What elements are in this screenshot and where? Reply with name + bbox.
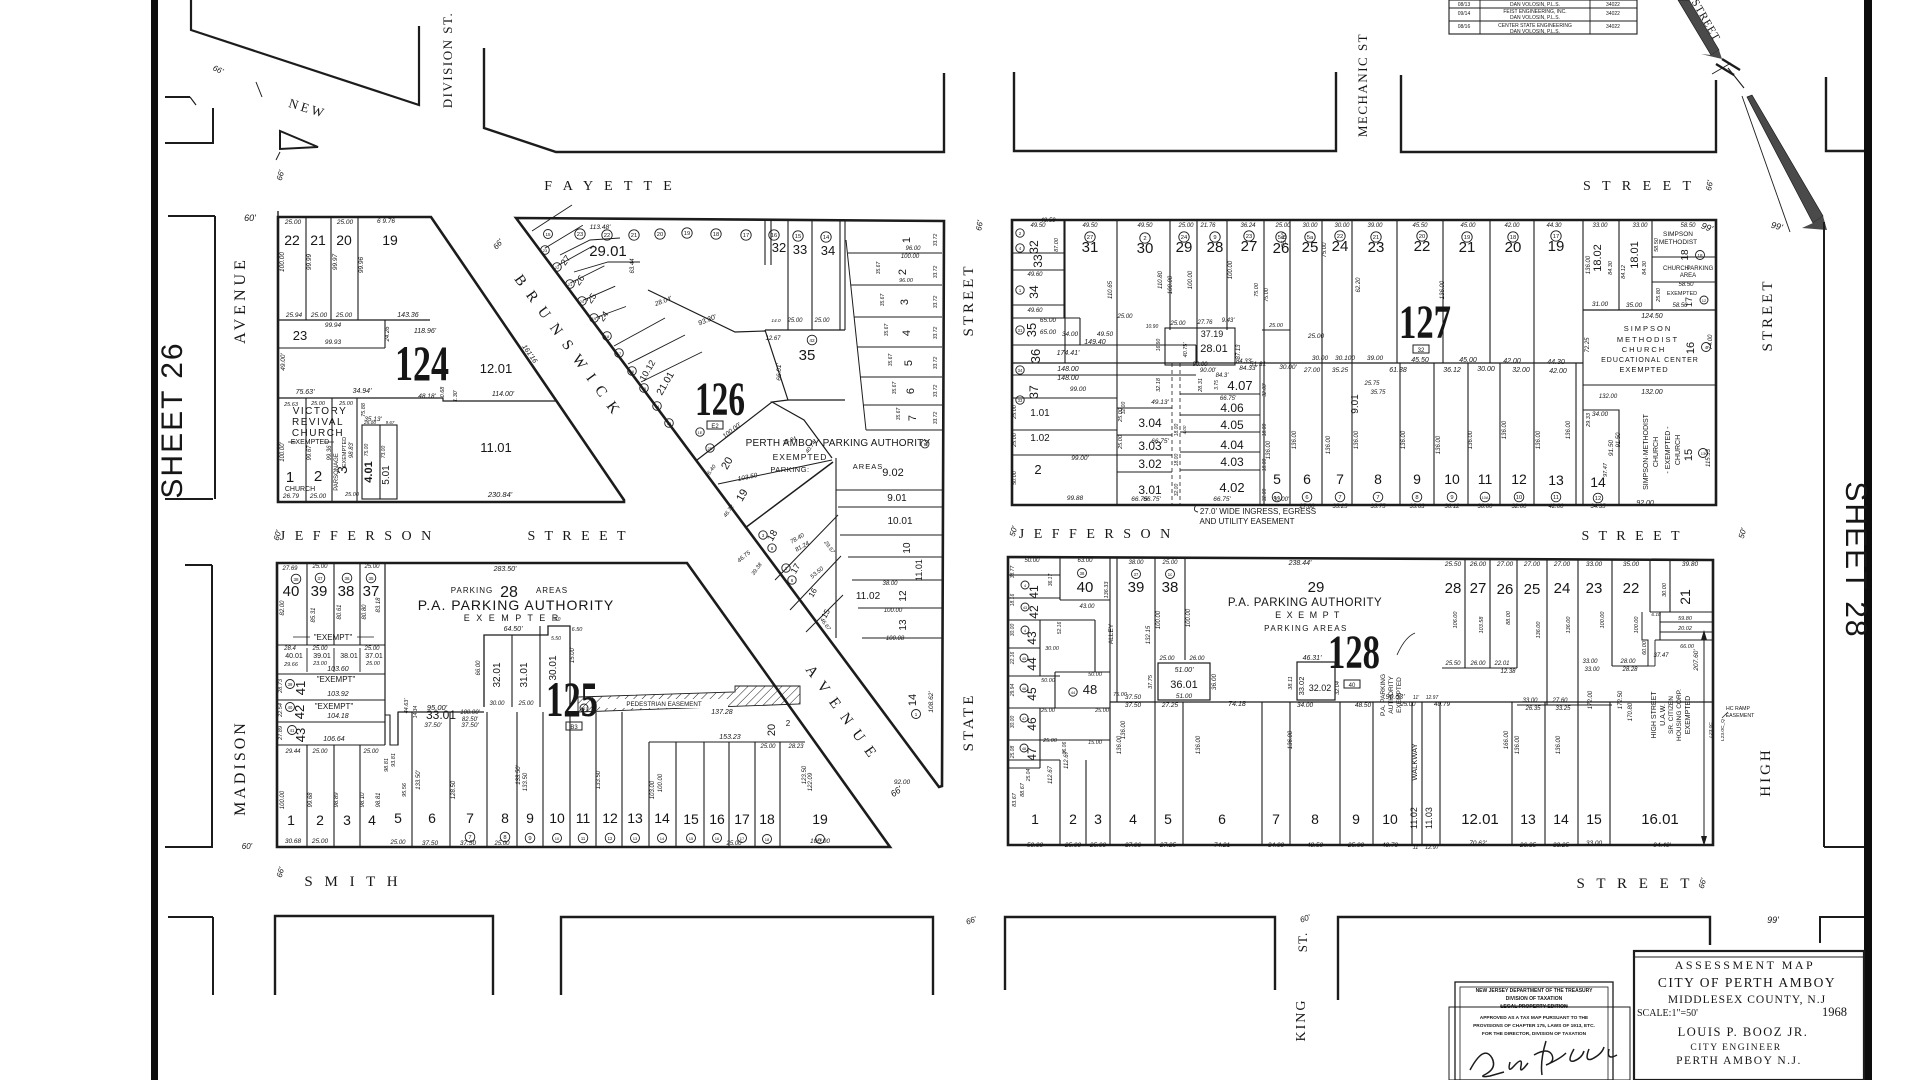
- svg-text:32.00: 32.00: [1121, 402, 1127, 415]
- svg-text:2: 2: [1034, 462, 1041, 477]
- svg-text:22: 22: [1623, 580, 1640, 597]
- svg-text:172.50: 172.50: [1618, 690, 1624, 709]
- svg-text:12: 12: [602, 810, 618, 826]
- svg-text:65.00: 65.00: [1040, 329, 1057, 336]
- svg-text:37.19: 37.19: [1201, 329, 1224, 339]
- svg-text:25.00: 25.00: [1161, 560, 1178, 566]
- svg-text:4.03: 4.03: [1220, 455, 1244, 469]
- svg-text:100.00: 100.00: [1186, 608, 1192, 627]
- svg-text:1E: 1E: [698, 430, 703, 435]
- svg-text:11.02: 11.02: [856, 591, 881, 602]
- svg-text:100.00': 100.00': [460, 710, 480, 716]
- svg-text:APPROVED AS A TAX MAP PURSUANT: APPROVED AS A TAX MAP PURSUANT TO THE: [1480, 1015, 1589, 1021]
- svg-text:103.92: 103.92: [327, 691, 349, 698]
- svg-text:74.00: 74.00: [1708, 334, 1714, 350]
- svg-text:22: 22: [604, 233, 610, 239]
- svg-text:SHEET 26: SHEET 26: [156, 341, 189, 498]
- svg-text:99.36: 99.36: [327, 445, 333, 461]
- svg-text:25.04: 25.04: [1026, 769, 1032, 783]
- svg-text:14: 14: [654, 810, 670, 826]
- svg-text:12: 12: [1595, 496, 1601, 502]
- svg-text:25.08: 25.08: [1010, 746, 1016, 760]
- svg-text:32.00: 32.00: [1174, 484, 1180, 497]
- svg-text:26.00: 26.00: [1469, 561, 1487, 568]
- svg-text:23: 23: [1246, 234, 1252, 240]
- svg-text:26.35: 26.35: [1519, 842, 1537, 849]
- svg-text:25.00: 25.00: [1274, 223, 1291, 229]
- svg-text:36.12: 36.12: [1444, 504, 1460, 510]
- svg-text:100.00: 100.00: [280, 790, 286, 809]
- svg-text:83.67: 83.67: [1012, 792, 1018, 807]
- svg-text:39.01: 39.01: [313, 653, 331, 660]
- svg-text:9.43': 9.43': [1222, 318, 1236, 324]
- svg-text:149.40: 149.40: [1084, 339, 1106, 346]
- svg-text:25.00: 25.00: [813, 318, 830, 324]
- svg-text:97.47: 97.47: [1603, 462, 1609, 477]
- svg-text:20: 20: [657, 232, 663, 238]
- svg-text:40.01: 40.01: [285, 653, 303, 660]
- svg-text:43: 43: [1023, 606, 1027, 610]
- svg-text:49.50: 49.50: [1082, 223, 1098, 229]
- svg-text:METHODIST: METHODIST: [1659, 239, 1697, 246]
- svg-text:30.100: 30.100: [1335, 355, 1355, 362]
- svg-text:E X E M P T E R: E X E M P T E R: [464, 613, 561, 623]
- svg-text:4.06: 4.06: [1220, 401, 1244, 415]
- svg-text:33.72: 33.72: [933, 385, 939, 398]
- svg-text:27.76: 27.76: [1196, 320, 1213, 326]
- svg-text:40: 40: [283, 583, 300, 600]
- svg-text:20.02: 20.02: [1677, 626, 1692, 632]
- svg-text:34.00: 34.00: [1062, 331, 1079, 338]
- svg-text:9: 9: [526, 810, 534, 826]
- svg-text:136.00: 136.00: [1440, 280, 1446, 299]
- svg-text:6 9.76: 6 9.76: [377, 218, 395, 225]
- svg-text:15.00: 15.00: [1088, 740, 1103, 746]
- svg-text:100.00: 100.00: [279, 252, 286, 272]
- svg-text:15: 15: [1586, 811, 1602, 827]
- svg-text:30.00: 30.00: [1477, 504, 1493, 510]
- svg-text:17: 17: [743, 233, 749, 239]
- svg-text:23: 23: [577, 232, 583, 238]
- svg-text:22: 22: [1337, 234, 1343, 240]
- svg-text:27.00: 27.00: [1523, 561, 1541, 568]
- svg-text:66.75': 66.75': [1213, 496, 1231, 503]
- svg-text:166.00: 166.00: [1504, 730, 1510, 749]
- svg-text:59.80: 59.80: [1678, 616, 1693, 622]
- svg-text:08/16: 08/16: [1458, 24, 1471, 30]
- svg-text:25.00: 25.00: [1118, 434, 1124, 450]
- svg-text:34: 34: [821, 243, 835, 258]
- svg-text:3: 3: [1094, 811, 1102, 827]
- svg-text:25.00: 25.00: [311, 646, 328, 652]
- svg-text:12.38: 12.38: [1500, 669, 1516, 675]
- svg-text:27.25: 27.25: [1159, 842, 1177, 849]
- svg-text:38.00: 38.00: [1128, 560, 1144, 566]
- svg-text:1.02: 1.02: [1030, 433, 1050, 444]
- svg-text:136.00: 136.00: [1326, 435, 1332, 454]
- svg-text:87.00: 87.00: [1054, 237, 1060, 252]
- svg-text:18.01: 18.01: [1629, 241, 1641, 269]
- svg-text:46: 46: [1022, 687, 1026, 691]
- svg-text:62.20: 62.20: [1356, 277, 1362, 293]
- svg-text:49.60: 49.60: [1027, 272, 1043, 278]
- svg-text:33.00: 33.00: [1584, 667, 1600, 673]
- svg-text:64.50': 64.50': [504, 626, 524, 633]
- svg-text:4: 4: [901, 330, 913, 336]
- svg-text:4.07: 4.07: [1227, 378, 1252, 393]
- svg-text:33.02: 33.02: [1297, 677, 1306, 696]
- svg-text:49.13': 49.13': [1151, 399, 1169, 406]
- svg-text:25.00: 25.00: [1012, 404, 1018, 420]
- svg-text:48.18': 48.18': [418, 393, 436, 400]
- svg-text:23: 23: [1368, 239, 1385, 256]
- svg-text:44.30: 44.30: [1546, 223, 1562, 229]
- svg-text:14.34: 14.34: [413, 706, 419, 719]
- svg-text:25.00: 25.00: [1177, 223, 1194, 229]
- svg-text:25.50: 25.50: [1444, 561, 1462, 568]
- svg-text:58.50: 58.50: [1672, 303, 1688, 309]
- svg-text:PARSONAGE: PARSONAGE: [334, 453, 340, 491]
- svg-text:35.25: 35.25: [1332, 367, 1349, 374]
- svg-text:27: 27: [1470, 580, 1487, 597]
- svg-text:J E F F E R S O N: J E F F E R S O N: [280, 529, 434, 544]
- svg-text:1: 1: [287, 812, 295, 828]
- svg-text:32.00: 32.00: [1512, 367, 1530, 374]
- svg-text:L23.0C: L23.0C: [1708, 722, 1714, 738]
- svg-text:16.90: 16.90: [1156, 339, 1162, 352]
- svg-text:33.72: 33.72: [933, 357, 939, 370]
- svg-text:14: 14: [823, 235, 830, 241]
- svg-text:25.00: 25.00: [725, 841, 742, 847]
- svg-text:6: 6: [428, 810, 436, 826]
- svg-text:95.56: 95.56: [402, 782, 408, 797]
- svg-text:SIMPSON: SIMPSON: [1663, 231, 1693, 238]
- svg-text:33.72: 33.72: [933, 266, 939, 279]
- svg-text:PERTH AMBOY PARKING AUTHORITY: PERTH AMBOY PARKING AUTHORITY: [746, 438, 931, 449]
- svg-text:CHURCH: CHURCH: [1653, 437, 1660, 467]
- svg-text:100.00: 100.00: [1228, 260, 1234, 279]
- svg-text:84.12: 84.12: [1621, 265, 1627, 279]
- svg-text:6: 6: [1218, 811, 1226, 827]
- svg-text:136.00: 136.00: [1515, 735, 1521, 754]
- svg-text:CITY ENGINEER: CITY ENGINEER: [1690, 1043, 1781, 1053]
- svg-text:45.00: 45.00: [1459, 357, 1477, 364]
- svg-text:11.01: 11.01: [480, 440, 512, 455]
- svg-text:25.00: 25.00: [517, 701, 534, 707]
- svg-text:24: 24: [1554, 580, 1571, 597]
- svg-text:35.67: 35.67: [884, 324, 890, 337]
- svg-text:100.00: 100.00: [1188, 270, 1194, 289]
- svg-text:18: 18: [605, 334, 610, 339]
- svg-text:22.01: 22.01: [1493, 661, 1509, 667]
- svg-text:EXEMPTED: EXEMPTED: [342, 437, 348, 467]
- svg-text:25.00: 25.00: [362, 749, 379, 755]
- svg-text:170.80: 170.80: [1628, 702, 1634, 721]
- svg-text:11: 11: [1553, 495, 1559, 501]
- svg-text:4: 4: [1024, 584, 1026, 588]
- svg-text:96.00: 96.00: [899, 278, 914, 284]
- svg-text:32.00: 32.00: [1511, 504, 1527, 510]
- svg-text:21: 21: [631, 233, 637, 239]
- svg-text:28.28: 28.28: [1621, 667, 1638, 673]
- svg-text:15: 15: [545, 232, 551, 237]
- svg-text:136.00: 136.00: [1354, 430, 1360, 449]
- svg-text:HC RAMP: HC RAMP: [1726, 706, 1750, 712]
- svg-text:103.60: 103.60: [327, 666, 349, 673]
- svg-text:75.00: 75.00: [1254, 282, 1260, 297]
- svg-text:38: 38: [1080, 571, 1085, 576]
- svg-text:12.67: 12.67: [765, 336, 781, 342]
- svg-text:128.50: 128.50: [451, 780, 457, 799]
- svg-text:46.31': 46.31': [1303, 655, 1323, 662]
- svg-text:22: 22: [555, 265, 560, 270]
- svg-text:28: 28: [1207, 239, 1224, 256]
- svg-text:36: 36: [344, 576, 350, 581]
- svg-text:CHURCH: CHURCH: [292, 428, 344, 439]
- svg-text:10: 10: [549, 810, 565, 826]
- svg-text:41: 41: [290, 728, 295, 733]
- svg-text:CHURCH: CHURCH: [285, 486, 315, 493]
- svg-text:133.50': 133.50': [416, 769, 422, 789]
- svg-text:19: 19: [382, 232, 398, 248]
- svg-text:12: 12: [1702, 298, 1707, 303]
- svg-text:3.01: 3.01: [1138, 483, 1162, 497]
- svg-text:33.01: 33.01: [426, 708, 456, 722]
- svg-text:EDUCATIONAL CENTER: EDUCATIONAL CENTER: [1601, 357, 1699, 364]
- svg-text:133.50: 133.50: [523, 772, 529, 791]
- svg-text:J E F F E R S O N: J E F F E R S O N: [1019, 527, 1173, 542]
- svg-text:100.00: 100.00: [884, 608, 903, 614]
- svg-text:25.00: 25.00: [1089, 842, 1107, 849]
- svg-text:21: 21: [1373, 235, 1379, 241]
- svg-text:4: 4: [368, 812, 376, 828]
- svg-text:25.00: 25.00: [1169, 321, 1186, 327]
- svg-text:U.A.W.: U.A.W.: [1660, 704, 1667, 726]
- svg-text:14.0: 14.0: [771, 318, 781, 324]
- svg-text:33.25: 33.25: [1555, 706, 1571, 712]
- svg-text:35.25: 35.25: [1332, 504, 1348, 510]
- svg-text:38.11: 38.11: [1288, 676, 1294, 689]
- svg-text:27.69: 27.69: [281, 566, 298, 572]
- svg-text:27.00: 27.00: [1553, 561, 1571, 568]
- svg-text:33.00: 33.00: [1632, 223, 1648, 229]
- svg-text:3: 3: [343, 812, 351, 828]
- svg-text:1: 1: [901, 237, 913, 243]
- svg-text:4.04: 4.04: [1220, 438, 1244, 452]
- svg-text:11: 11: [1478, 471, 1493, 487]
- svg-text:33: 33: [793, 242, 807, 257]
- svg-text:132.15: 132.15: [1146, 625, 1152, 644]
- svg-text:27.89: 27.89: [278, 726, 284, 741]
- svg-text:33.00: 33.00: [1586, 840, 1603, 847]
- svg-text:66.75': 66.75': [1131, 496, 1149, 503]
- svg-text:15.00': 15.00': [570, 646, 576, 663]
- svg-text:25.00: 25.00: [1158, 656, 1175, 662]
- svg-text:NEW JERSEY DEPARTMENT OF THE T: NEW JERSEY DEPARTMENT OF THE TREASURY: [1476, 988, 1594, 994]
- svg-text:10A: 10A: [1482, 496, 1489, 500]
- svg-text:98.81: 98.81: [376, 792, 382, 807]
- svg-text:25.00: 25.00: [311, 749, 328, 755]
- svg-text:34: 34: [1027, 285, 1041, 299]
- svg-text:1.17: 1.17: [581, 707, 588, 711]
- svg-text:80.80: 80.80: [362, 604, 368, 620]
- svg-text:60': 60': [244, 213, 256, 223]
- svg-text:137.28: 137.28: [711, 709, 733, 716]
- svg-text:AVENUE: AVENUE: [232, 256, 249, 344]
- svg-text:KING: KING: [1294, 999, 1309, 1042]
- svg-text:25.00: 25.00: [1268, 323, 1284, 329]
- svg-text:25.00: 25.00: [309, 493, 327, 500]
- svg-text:24: 24: [1181, 235, 1188, 241]
- svg-text:45.50: 45.50: [1412, 223, 1428, 229]
- svg-text:18.02: 18.02: [1592, 244, 1604, 272]
- svg-text:37.06: 37.06: [1125, 842, 1142, 849]
- svg-text:36.24: 36.24: [1240, 223, 1256, 229]
- svg-text:136.00: 136.00: [1536, 621, 1542, 639]
- svg-text:AREAS: AREAS: [536, 586, 568, 595]
- svg-text:25.80: 25.80: [1656, 287, 1662, 303]
- svg-text:EASEMENT: EASEMENT: [1726, 713, 1755, 719]
- svg-text:66.00: 66.00: [1680, 644, 1695, 650]
- svg-text:39: 39: [288, 682, 293, 687]
- svg-text:148.00: 148.00: [1057, 366, 1079, 373]
- svg-text:106.64: 106.64: [323, 736, 345, 743]
- svg-text:25.94: 25.94: [285, 312, 303, 319]
- svg-text:30.00': 30.00': [1273, 497, 1290, 503]
- svg-text:45.50: 45.50: [1411, 357, 1429, 364]
- svg-text:25.00: 25.00: [493, 841, 510, 847]
- svg-text:136.00: 136.00: [1117, 735, 1123, 754]
- svg-text:S T R E E T: S T R E E T: [527, 529, 628, 544]
- svg-text:25.00: 25.00: [1064, 842, 1082, 849]
- svg-text:15: 15: [795, 234, 801, 240]
- svg-text:30.00: 30.00: [1477, 366, 1495, 373]
- svg-text:83.18: 83.18: [376, 597, 382, 613]
- svg-text:99.68: 99.68: [308, 792, 314, 808]
- svg-text:32: 32: [1418, 348, 1425, 354]
- svg-text:CITY OF PERTH AMBOY: CITY OF PERTH AMBOY: [1658, 975, 1836, 990]
- svg-text:26: 26: [1497, 581, 1514, 598]
- svg-text:75.00: 75.00: [1282, 232, 1288, 248]
- svg-text:6: 6: [1303, 471, 1311, 487]
- svg-text:28.31: 28.31: [1198, 378, 1204, 393]
- svg-text:EXEMPTED: EXEMPTED: [1667, 291, 1697, 297]
- svg-text:13: 13: [633, 836, 638, 841]
- svg-text:35.67: 35.67: [876, 262, 882, 275]
- svg-text:35: 35: [799, 347, 816, 364]
- svg-text:136.00: 136.00: [1586, 255, 1592, 274]
- svg-text:32: 32: [772, 240, 786, 255]
- svg-text:9: 9: [1213, 235, 1216, 241]
- svg-text:L23.0C_Q: L23.0C_Q: [1720, 719, 1726, 741]
- svg-text:16: 16: [630, 369, 635, 374]
- svg-text:30.00: 30.00: [1010, 624, 1016, 637]
- svg-text:10: 10: [1382, 811, 1398, 827]
- svg-text:99.94: 99.94: [325, 322, 342, 329]
- svg-text:12: 12: [1511, 471, 1527, 487]
- svg-text:34022: 34022: [1606, 2, 1620, 8]
- svg-text:49.60: 49.60: [1027, 308, 1043, 314]
- svg-text:48: 48: [1022, 747, 1026, 751]
- svg-text:4,00: 4,00: [1182, 425, 1187, 434]
- svg-text:30: 30: [1137, 240, 1154, 257]
- svg-text:25: 25: [1302, 239, 1319, 256]
- svg-text:SIMPSON: SIMPSON: [1624, 324, 1673, 333]
- svg-text:18: 18: [713, 232, 719, 238]
- svg-text:136.00: 136.00: [1468, 430, 1474, 449]
- svg-text:2: 2: [316, 812, 324, 828]
- svg-text:4.05: 4.05: [1220, 418, 1244, 432]
- svg-text:25.00: 25.00: [1040, 708, 1056, 714]
- svg-text:EXEMPTED: EXEMPTED: [1685, 696, 1692, 735]
- svg-text:51.00: 51.00: [1176, 693, 1193, 700]
- svg-text:58.50: 58.50: [1678, 282, 1694, 288]
- svg-text:P.A. PARKING AUTHORITY: P.A. PARKING AUTHORITY: [418, 597, 615, 613]
- svg-text:9: 9: [1450, 495, 1453, 501]
- svg-text:25.00: 25.00: [1116, 314, 1133, 320]
- svg-text:11': 11': [1413, 695, 1420, 701]
- svg-text:38.01: 38.01: [340, 653, 358, 660]
- svg-text:99.88: 99.88: [1067, 495, 1084, 502]
- svg-text:P.A. PARKING: P.A. PARKING: [1380, 674, 1387, 716]
- svg-text:25.00: 25.00: [363, 420, 376, 426]
- svg-text:34022: 34022: [1606, 24, 1620, 30]
- svg-text:F A Y E T T E: F A Y E T T E: [544, 179, 676, 194]
- svg-text:174.41': 174.41': [1057, 350, 1080, 357]
- svg-text:127: 127: [1399, 296, 1451, 349]
- svg-text:99.96: 99.96: [358, 256, 365, 273]
- svg-text:37: 37: [363, 583, 380, 600]
- svg-text:DAN VOLOSIN, P.L.S.: DAN VOLOSIN, P.L.S.: [1510, 15, 1560, 21]
- svg-text:3.04: 3.04: [1138, 416, 1162, 430]
- svg-text:37.13: 37.13: [1236, 344, 1242, 360]
- svg-text:42.00: 42.00: [1549, 368, 1567, 375]
- svg-text:88.00: 88.00: [1506, 610, 1512, 625]
- svg-text:5: 5: [1164, 811, 1172, 827]
- svg-text:136.00: 136.00: [1292, 430, 1298, 449]
- svg-text:ALLEY: ALLEY: [1108, 623, 1115, 644]
- svg-text:153.23: 153.23: [719, 734, 741, 741]
- svg-text:132.00: 132.00: [1599, 394, 1618, 400]
- svg-text:11: 11: [576, 810, 591, 826]
- svg-text:136.00: 136.00: [1288, 730, 1294, 749]
- svg-text:8: 8: [1415, 495, 1418, 501]
- svg-text:15: 15: [689, 836, 694, 841]
- svg-text:98.10: 98.10: [360, 792, 366, 808]
- svg-text:35.67: 35.67: [892, 382, 898, 395]
- svg-text:91.50: 91.50: [1608, 439, 1615, 456]
- svg-text:LOUIS P. BOOZ JR.: LOUIS P. BOOZ JR.: [1678, 1025, 1809, 1039]
- svg-text:- EXEMPTED -: - EXEMPTED -: [1665, 426, 1672, 474]
- svg-text:3.02: 3.02: [1138, 457, 1162, 471]
- svg-text:39: 39: [1128, 579, 1145, 596]
- svg-text:AUTHORITY: AUTHORITY: [1388, 676, 1395, 714]
- svg-text:66.75': 66.75': [1151, 438, 1169, 445]
- svg-text:61.38: 61.38: [1389, 367, 1407, 374]
- svg-text:7: 7: [1338, 495, 1341, 501]
- svg-text:33.00: 33.00: [1522, 698, 1538, 704]
- svg-text:4.01: 4.01: [363, 461, 375, 482]
- svg-text:48.50: 48.50: [1355, 702, 1372, 709]
- svg-text:MECHANIC ST: MECHANIC ST: [1355, 33, 1370, 137]
- svg-text:34: 34: [1018, 368, 1023, 373]
- svg-text:13: 13: [1548, 472, 1564, 488]
- svg-text:20: 20: [1505, 239, 1522, 256]
- svg-text:43.00: 43.00: [1079, 604, 1095, 610]
- svg-text:37.47: 37.47: [1653, 653, 1669, 659]
- svg-text:26.79: 26.79: [282, 493, 300, 500]
- svg-text:114.00': 114.00': [492, 391, 515, 398]
